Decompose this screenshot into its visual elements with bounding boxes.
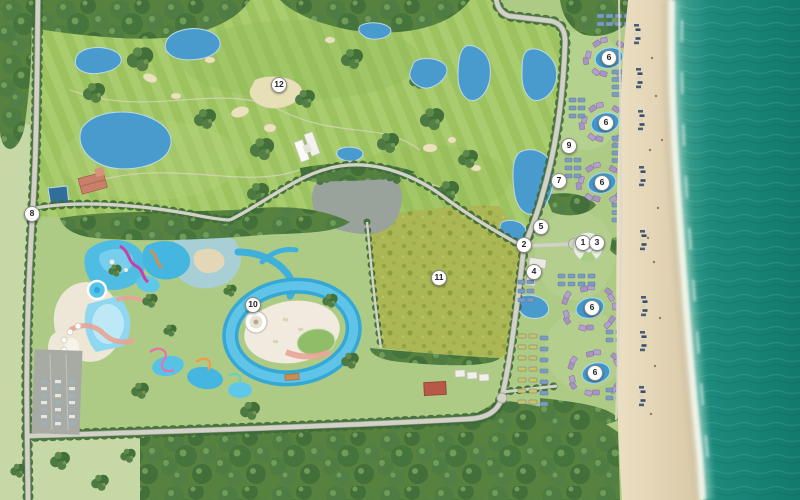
map-marker-11[interactable]: 11 [431,270,447,286]
resort-master-plan-map: 1234566666789101112 [0,0,800,500]
map-marker-12[interactable]: 12 [271,77,287,93]
map-marker-6[interactable]: 6 [598,115,614,131]
map-marker-4[interactable]: 4 [526,264,542,280]
map-marker-6[interactable]: 6 [594,175,610,191]
map-marker-3[interactable]: 3 [589,235,605,251]
map-marker-6[interactable]: 6 [601,50,617,66]
map-marker-10[interactable]: 10 [245,297,261,313]
map-marker-9[interactable]: 9 [561,138,577,154]
map-marker-6[interactable]: 6 [584,300,600,316]
map-marker-7[interactable]: 7 [551,173,567,189]
map-marker-5[interactable]: 5 [533,219,549,235]
plan-markers: 1234566666789101112 [0,0,800,500]
map-marker-2[interactable]: 2 [516,237,532,253]
map-marker-6[interactable]: 6 [587,365,603,381]
map-marker-8[interactable]: 8 [24,206,40,222]
